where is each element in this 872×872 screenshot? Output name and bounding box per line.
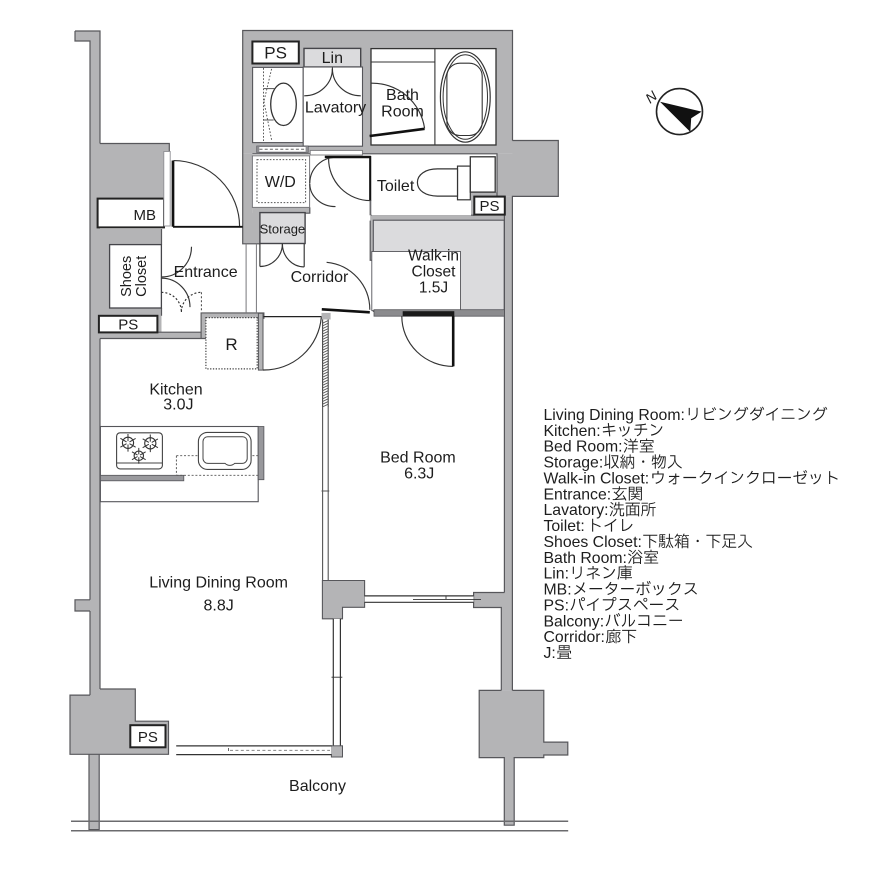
svg-text:Storage: Storage [260,222,306,237]
svg-text:R: R [225,335,237,354]
svg-text:Toilet:: Toilet: [544,518,585,535]
svg-text:Lavatory: Lavatory [305,100,366,117]
svg-text:PS: PS [118,317,138,334]
svg-text:PS:: PS: [544,597,569,614]
svg-text:3.0J: 3.0J [163,397,193,414]
svg-text:8.8J: 8.8J [203,598,233,615]
svg-text:PS: PS [138,729,158,746]
svg-text:Balcony:: Balcony: [544,613,605,630]
svg-text:Bath: Bath [386,87,419,104]
svg-text:Corridor:: Corridor: [544,629,605,646]
svg-text:Kitchen:: Kitchen: [544,423,601,440]
svg-text:Walk-in Closet:: Walk-in Closet: [544,471,650,488]
svg-text:Walk-in: Walk-in [408,247,459,264]
svg-text:PS: PS [479,198,499,215]
svg-text:Shoes: Shoes [119,256,135,297]
svg-text:Living Dining Room: Living Dining Room [149,575,288,592]
svg-text:Bed Room:: Bed Room: [544,439,623,456]
svg-text:Toilet: Toilet [377,178,415,195]
svg-text:Closet: Closet [412,263,457,280]
svg-text:Storage:: Storage: [544,455,604,472]
svg-text:Living Dining Room:: Living Dining Room: [544,407,685,424]
svg-text:6.3J: 6.3J [404,466,434,483]
svg-text:Lin: Lin [322,50,343,67]
svg-text:Entrance:: Entrance: [544,486,612,503]
svg-text:MB: MB [134,207,157,224]
svg-text:1.5J: 1.5J [419,279,448,296]
svg-text:J:: J: [544,645,556,662]
svg-text:MB:: MB: [544,582,572,599]
svg-text:Room: Room [381,104,424,121]
svg-text:Corridor: Corridor [291,269,349,286]
svg-text:Bath Room:: Bath Room: [544,550,627,567]
svg-text:Shoes Closet:: Shoes Closet: [544,534,642,551]
svg-text:Entrance: Entrance [174,264,238,281]
svg-text:Lin:: Lin: [544,566,569,583]
svg-text:Balcony: Balcony [289,778,346,795]
svg-text:Bed Room: Bed Room [380,450,456,467]
svg-text:W/D: W/D [265,174,296,191]
svg-text:Closet: Closet [134,256,150,297]
svg-text:Lavatory:: Lavatory: [544,502,609,519]
svg-text:PS: PS [264,44,287,63]
